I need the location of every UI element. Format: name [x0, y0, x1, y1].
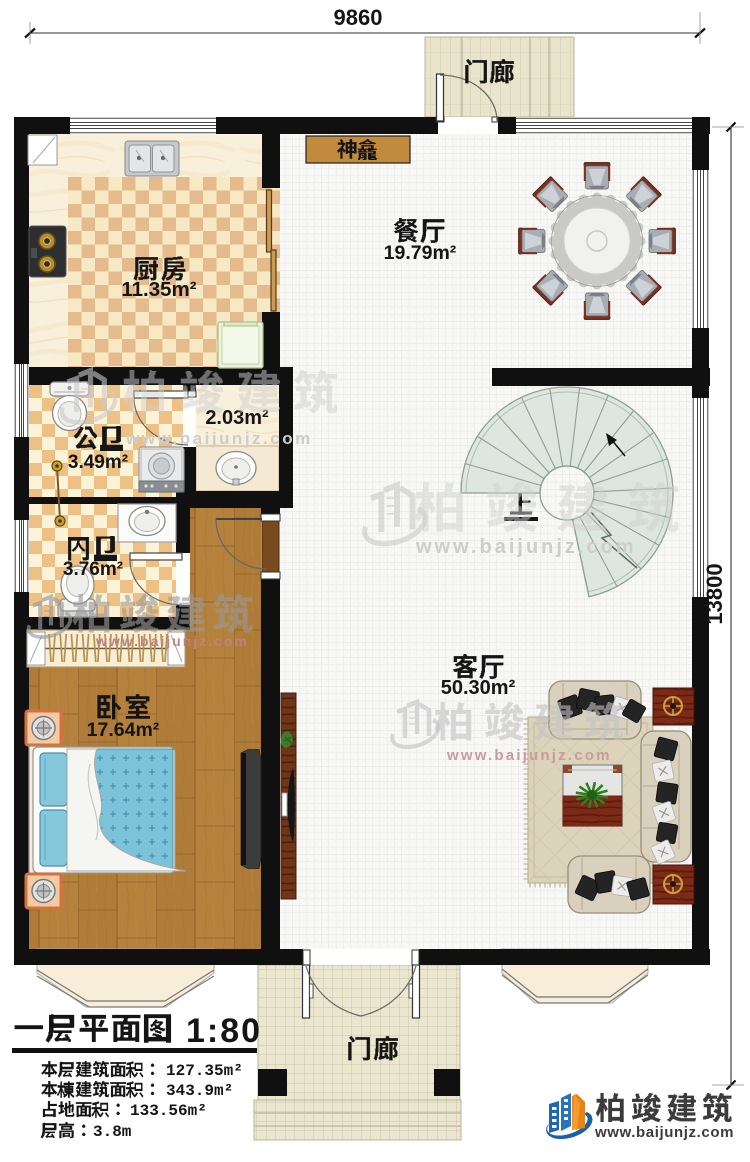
svg-text:www.baijunjz.com: www.baijunjz.com — [415, 536, 637, 558]
svg-text:www.baijunjz.com: www.baijunjz.com — [125, 429, 313, 448]
svg-text:1:80: 1:80 — [186, 1012, 262, 1050]
svg-text:11.35m²: 11.35m² — [121, 278, 196, 301]
svg-text:17.64m²: 17.64m² — [87, 719, 160, 741]
svg-text:19.79m²: 19.79m² — [384, 242, 457, 264]
svg-text:133.56m²: 133.56m² — [130, 1102, 207, 1120]
svg-text:www.baijunjz.com: www.baijunjz.com — [594, 1124, 734, 1141]
svg-text:www.baijunjz.com: www.baijunjz.com — [446, 747, 612, 764]
svg-text:3.76m²: 3.76m² — [63, 559, 123, 580]
svg-text:343.9m²: 343.9m² — [166, 1082, 233, 1100]
svg-text:3.8m: 3.8m — [93, 1123, 132, 1141]
svg-text:3.49m²: 3.49m² — [68, 452, 128, 473]
svg-text:9860: 9860 — [334, 5, 383, 30]
svg-text:13800: 13800 — [702, 563, 727, 624]
svg-text:www.baijunjz.com: www.baijunjz.com — [95, 633, 249, 649]
svg-text:127.35m²: 127.35m² — [166, 1062, 243, 1080]
svg-text:50.30m²: 50.30m² — [441, 677, 516, 699]
